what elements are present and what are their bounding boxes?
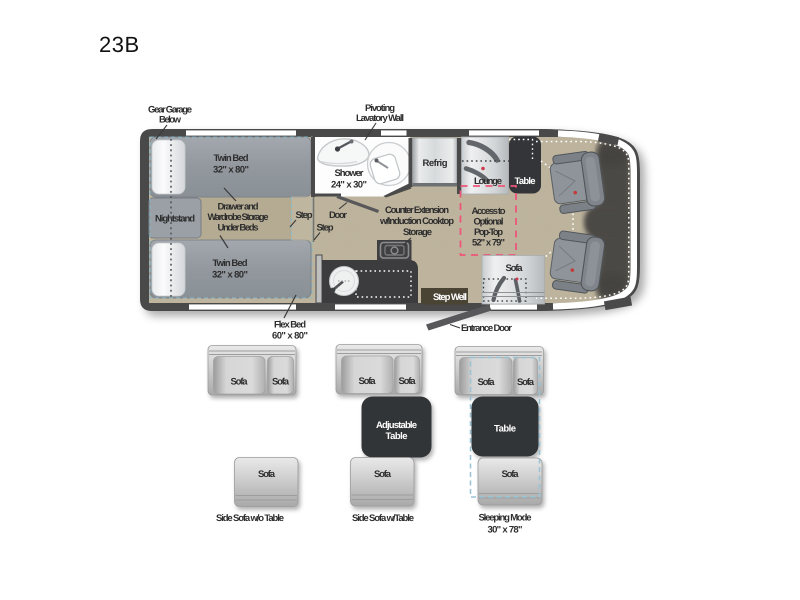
svg-text:Counter Extension: Counter Extension [385, 205, 449, 216]
svg-text:Side Sofa w/Table: Side Sofa w/Table [352, 513, 414, 524]
svg-text:32" x 80": 32" x 80" [213, 165, 249, 176]
svg-text:Sleeping Mode: Sleeping Mode [479, 513, 532, 524]
svg-text:60" x 80": 60" x 80" [272, 331, 308, 342]
svg-text:Optional: Optional [474, 217, 504, 228]
svg-text:Storage: Storage [403, 227, 432, 238]
svg-text:Table: Table [515, 176, 536, 187]
svg-text:Flex Bed: Flex Bed [274, 320, 306, 331]
svg-text:Sofa: Sofa [231, 377, 249, 388]
svg-text:Twin Bed: Twin Bed [213, 258, 248, 269]
svg-text:Lavatory Wall: Lavatory Wall [356, 113, 404, 124]
svg-text:Sofa: Sofa [399, 376, 417, 387]
svg-text:Twin Bed: Twin Bed [214, 153, 249, 164]
svg-text:Sofa: Sofa [374, 469, 392, 480]
svg-text:Sofa: Sofa [258, 469, 276, 480]
svg-text:Wardrobe Storage: Wardrobe Storage [208, 212, 269, 223]
svg-text:Step: Step [317, 223, 334, 234]
svg-text:Under Beds: Under Beds [218, 223, 259, 234]
svg-text:Table: Table [386, 431, 408, 442]
svg-text:Pop-Top: Pop-Top [474, 227, 503, 238]
svg-text:52" x 79": 52" x 79" [472, 238, 505, 249]
svg-text:Access to: Access to [472, 206, 506, 217]
svg-text:30" x 78": 30" x 78" [488, 525, 523, 536]
svg-text:Door: Door [329, 210, 347, 221]
svg-text:w/Induction Cooktop: w/Induction Cooktop [379, 216, 454, 227]
svg-text:Step: Step [296, 210, 313, 221]
svg-text:Sofa: Sofa [359, 376, 377, 387]
svg-text:Sofa: Sofa [506, 263, 524, 274]
svg-text:Sofa: Sofa [478, 377, 496, 388]
svg-text:Shower: Shower [335, 168, 364, 179]
svg-text:Side Sofa w/o Table: Side Sofa w/o Table [216, 513, 284, 524]
svg-text:Sofa: Sofa [517, 377, 535, 388]
svg-text:Adjustable: Adjustable [376, 420, 417, 431]
svg-text:Refrig: Refrig [423, 158, 448, 169]
svg-text:32" x 80": 32" x 80" [212, 270, 248, 281]
svg-text:Table: Table [494, 424, 516, 435]
svg-text:Drawer and: Drawer and [218, 202, 259, 213]
svg-text:Sofa: Sofa [502, 469, 520, 480]
svg-text:Step Well: Step Well [433, 292, 467, 303]
svg-text:Below: Below [159, 115, 182, 126]
svg-text:Nightstand: Nightstand [155, 214, 195, 225]
svg-text:24" x 30": 24" x 30" [331, 180, 367, 191]
svg-text:Entrance Door: Entrance Door [461, 323, 512, 334]
svg-text:Sofa: Sofa [272, 377, 290, 388]
svg-text:23B: 23B [99, 32, 140, 57]
